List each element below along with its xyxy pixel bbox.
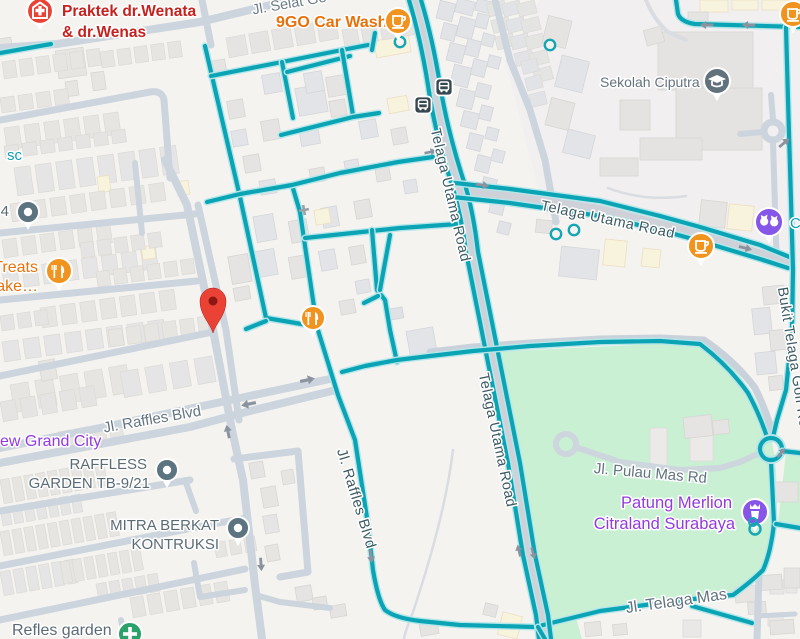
svg-text:Cake…: Cake… <box>0 278 38 295</box>
svg-text:C: C <box>790 215 800 232</box>
svg-text:& dr.Wenas: & dr.Wenas <box>62 24 146 41</box>
svg-text:KONTRUKSI: KONTRUKSI <box>131 536 219 553</box>
svg-text:Patung Merlion: Patung Merlion <box>621 494 732 512</box>
svg-text:sc: sc <box>7 147 23 164</box>
svg-text:Praktek dr.Wenata: Praktek dr.Wenata <box>62 3 196 20</box>
svg-text:Refles garden: Refles garden <box>12 622 112 639</box>
svg-text:MITRA BERKAT: MITRA BERKAT <box>110 517 219 534</box>
svg-text:GARDEN TB-9/21: GARDEN TB-9/21 <box>29 475 150 492</box>
svg-text:ew Grand City: ew Grand City <box>0 433 101 450</box>
svg-text:Treats: Treats <box>0 259 38 276</box>
svg-text:RAFFLESS: RAFFLESS <box>69 456 147 473</box>
svg-text:Sekolah Ciputra: Sekolah Ciputra <box>600 74 700 90</box>
svg-text:9GO Car Wash: 9GO Car Wash <box>276 14 387 31</box>
svg-text:4: 4 <box>1 203 9 220</box>
svg-text:Citraland Surabaya: Citraland Surabaya <box>594 515 736 533</box>
